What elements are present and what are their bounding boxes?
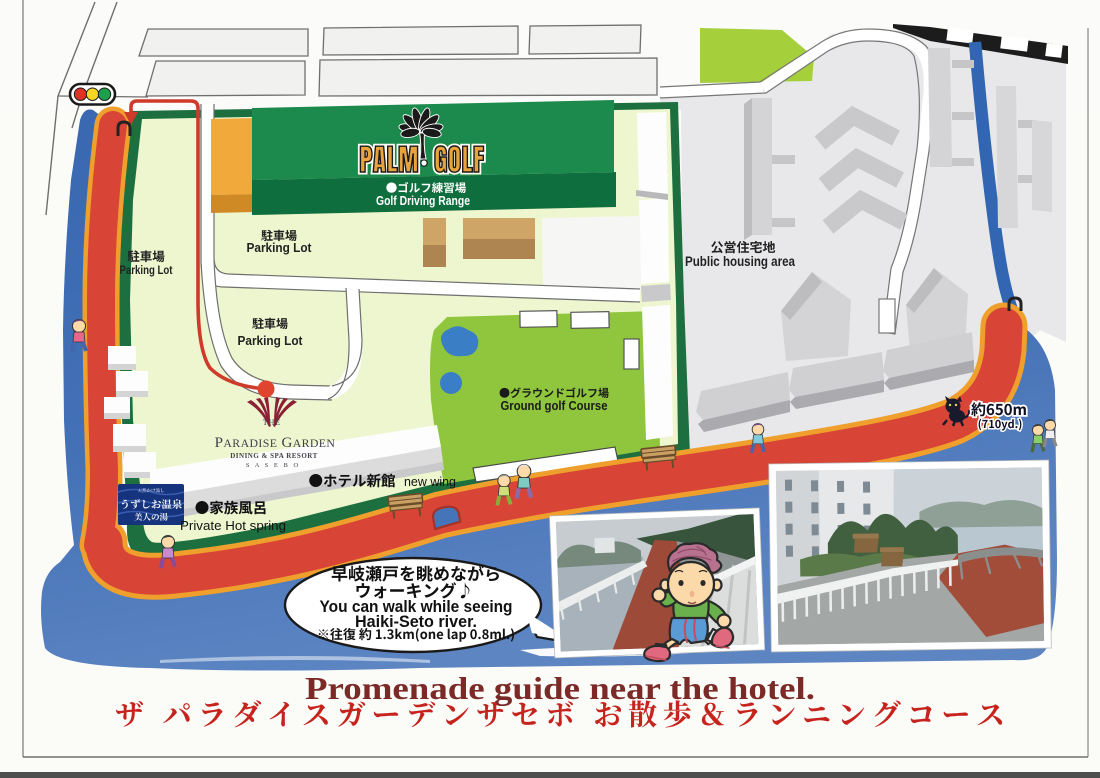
svg-text:Private Hot spring: Private Hot spring <box>180 518 286 533</box>
svg-text:Promenade guide near the hotel: Promenade guide near the hotel. <box>305 670 815 706</box>
svg-text:Parking Lot: Parking Lot <box>247 241 313 255</box>
svg-text:PARADISE GARDEN: PARADISE GARDEN <box>215 435 336 451</box>
svg-text:new wing: new wing <box>404 474 456 489</box>
svg-text:Public housing area: Public housing area <box>685 254 795 269</box>
svg-text:Haiki-Seto river.: Haiki-Seto river. <box>355 613 477 631</box>
svg-text:Parking Lot: Parking Lot <box>120 263 173 277</box>
svg-text:THE: THE <box>263 418 282 427</box>
svg-text:Golf Driving Range: Golf Driving Range <box>376 193 470 208</box>
svg-text:Ground golf Course: Ground golf Course <box>501 398 608 413</box>
svg-text:Parking Lot: Parking Lot <box>238 334 304 348</box>
svg-text:DINING & SPA RESORT: DINING & SPA RESORT <box>230 452 318 460</box>
svg-text:S A S E B O: S A S E B O <box>246 462 300 469</box>
